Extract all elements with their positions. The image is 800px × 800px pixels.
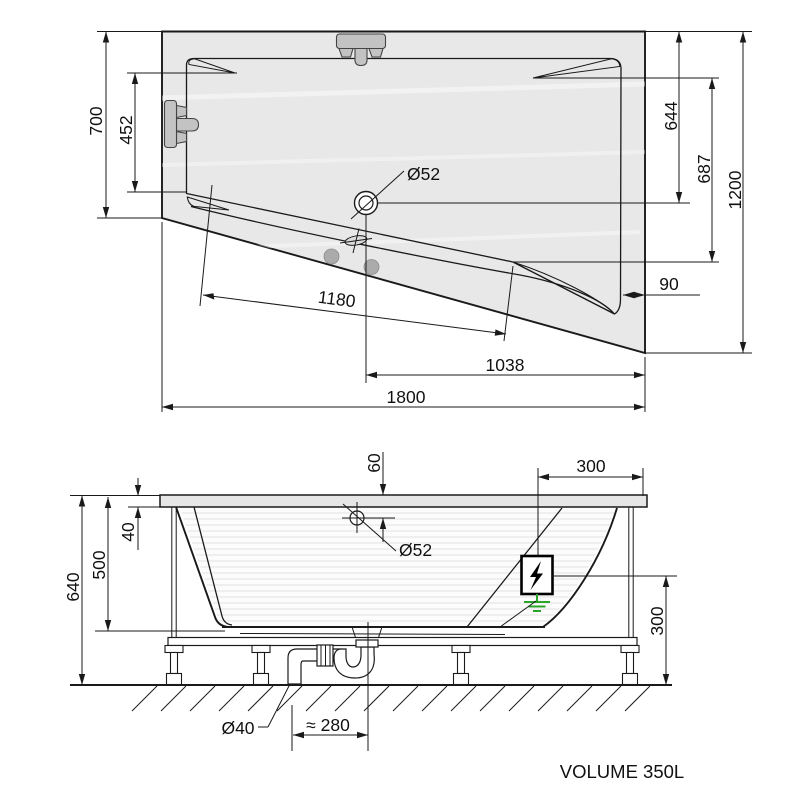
drain-hole-inner	[359, 196, 373, 210]
volume-label: VOLUME 350L	[560, 761, 684, 782]
dim-height-left: 700	[86, 106, 106, 135]
dim-drain-from-top: 644	[661, 101, 681, 130]
dim-drain-from-right: 1038	[486, 355, 525, 375]
dim-width: 1800	[387, 387, 426, 407]
frame-legs	[165, 646, 639, 685]
dim-drain-diameter-top: Ø52	[407, 164, 440, 184]
dim-depth: 500	[89, 550, 109, 579]
tub-outline-top	[162, 32, 645, 354]
side-view: 60 40 500 640 Ø52 300 300 Ø40 ≈ 280 VOLU…	[63, 452, 684, 782]
dim-overflow-from-rim: 60	[364, 453, 384, 473]
jet-hole-left	[324, 249, 339, 264]
technical-drawing-page: 700 452 644 687 1200 90 Ø52 1180 1038 18…	[0, 0, 800, 800]
dim-height-right: 1200	[725, 170, 745, 209]
dim-backrest-width: 452	[116, 115, 136, 144]
rim-bar	[160, 495, 647, 507]
dim-waste-diameter: Ø40	[221, 718, 254, 738]
dim-rim-right: 90	[659, 274, 679, 294]
floor-hatching	[132, 686, 650, 711]
shell-bottom	[240, 634, 505, 635]
frame-rail	[168, 638, 637, 646]
dim-inner-height-right: 687	[694, 154, 714, 183]
bathtub-drawing: 700 452 644 687 1200 90 Ø52 1180 1038 18…	[0, 0, 800, 800]
dim-electric-height: 300	[647, 606, 667, 635]
dim-rim-height: 40	[118, 522, 138, 542]
waste-trap	[288, 640, 378, 684]
dim-electric-from-edge: 300	[576, 456, 605, 476]
dim-overflow-diameter: Ø52	[399, 540, 432, 560]
dim-total-height: 640	[63, 572, 83, 601]
dim-inner-diagonal: 1180	[317, 287, 357, 312]
top-view: 700 452 644 687 1200 90 Ø52 1180 1038 18…	[86, 32, 752, 413]
dim-trap-offset: ≈ 280	[306, 715, 350, 735]
